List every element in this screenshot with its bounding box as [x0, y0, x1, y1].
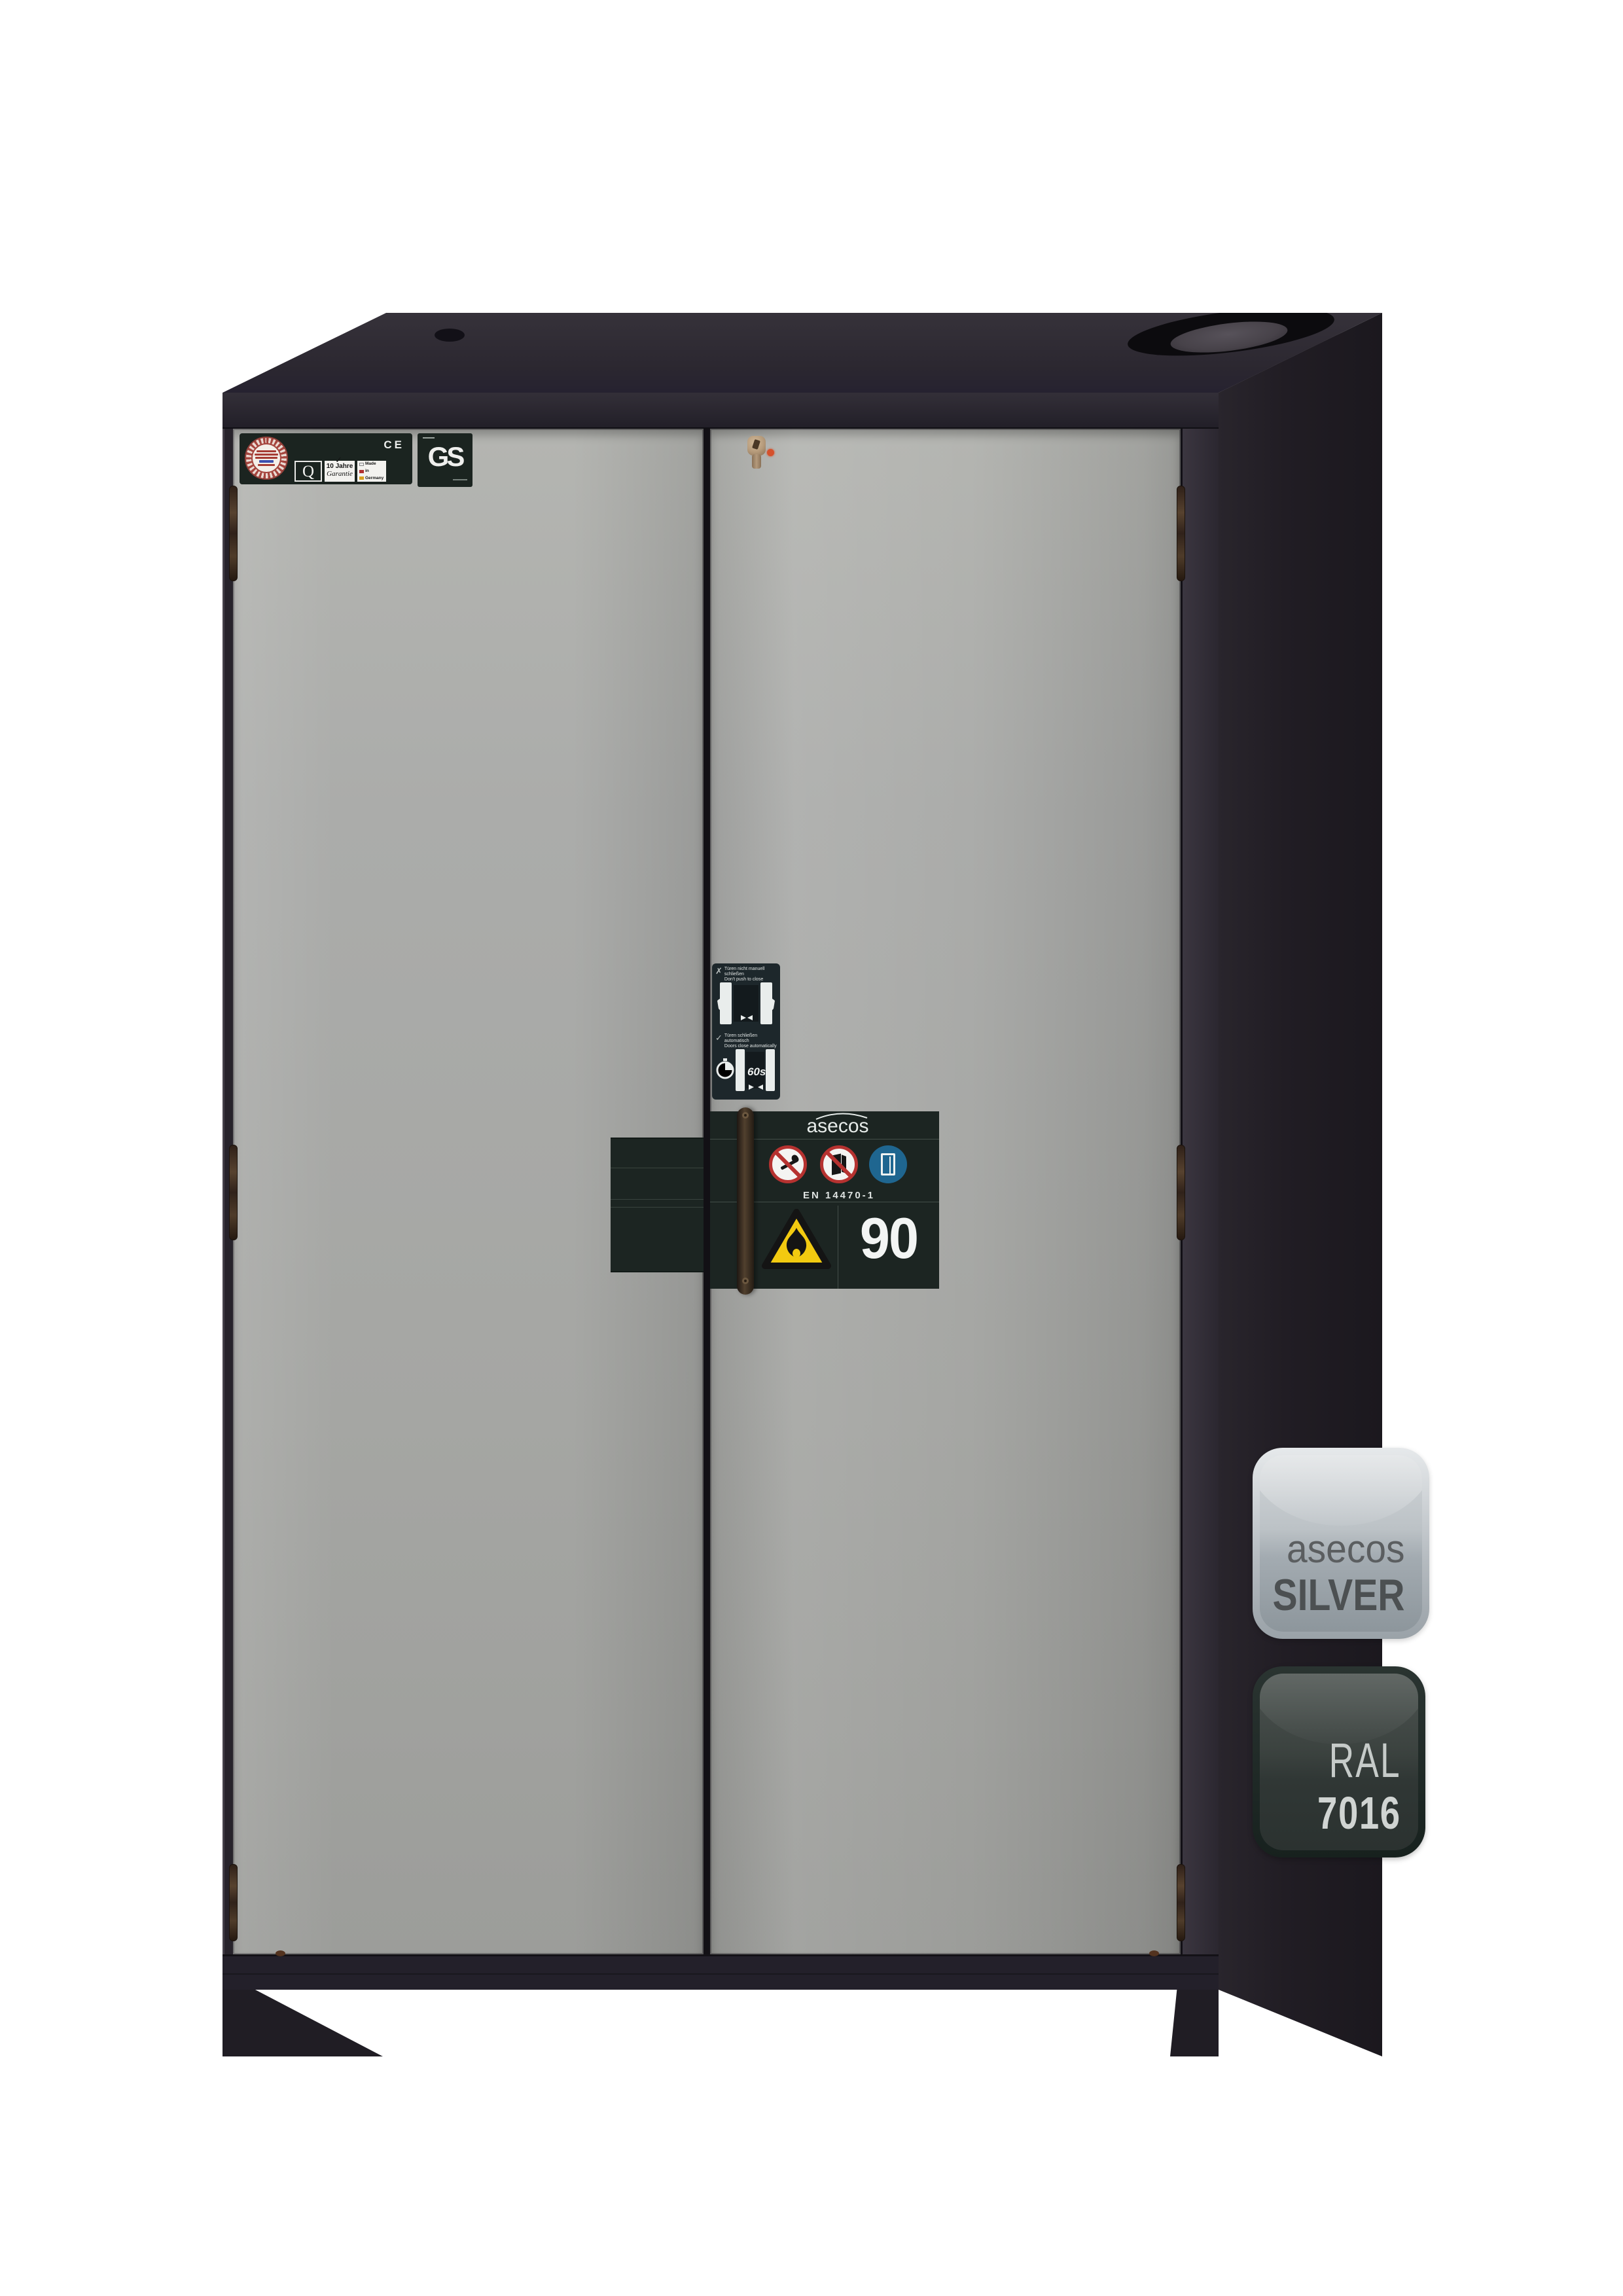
- warranty-word: Garantie: [325, 470, 355, 478]
- no-push-de: Türen nicht manuell schließen: [724, 967, 764, 977]
- dont-push-section: ✗ Türen nicht manuell schließen Don't pu…: [715, 967, 777, 1030]
- doors-close-automatically-icon: 60s: [716, 1048, 776, 1094]
- spec-line: [611, 1207, 704, 1208]
- certification-marks-row: Q ✓ 10 Jahre Garantie Made in Germany: [294, 461, 386, 482]
- ral-badge-code: 7016: [1317, 1790, 1401, 1836]
- germany-word: Germany: [365, 476, 383, 481]
- handle-screw: [742, 1112, 749, 1119]
- front-header-band: [223, 393, 1219, 429]
- left-leg: [223, 1990, 383, 2056]
- key-lock-icon: [747, 436, 766, 456]
- timer-60s: 60s: [747, 1066, 766, 1078]
- front-left-edge-highlight: [223, 393, 224, 1990]
- made-in-germany-badge: Made in Germany: [357, 461, 386, 482]
- ce-mark-icon: CE: [383, 439, 404, 452]
- label-divider-vertical: [838, 1206, 838, 1289]
- right-leg: [1170, 1990, 1219, 2056]
- hinge: [1177, 486, 1185, 581]
- checkmark-icon: ✓: [335, 455, 342, 465]
- product-photo-safety-cabinet: Q ✓ 10 Jahre Garantie Made in Germany CE…: [0, 0, 1623, 2296]
- auto-close-de: Türen schließen automatisch: [724, 1033, 757, 1043]
- flag-chip-icon: [359, 463, 364, 466]
- q-mark-letter: Q: [302, 463, 314, 480]
- handle-screw: [742, 1278, 749, 1284]
- auto-close-section: ✓ Türen schließen automatisch Doors clos…: [715, 1033, 777, 1096]
- silver-badge-level: SILVER: [1273, 1573, 1405, 1617]
- spec-line: [611, 1199, 704, 1200]
- cabinet-top-panel: [223, 313, 1382, 393]
- container-glyph: [881, 1153, 895, 1175]
- key-lock-stem: [752, 454, 761, 469]
- asecos-logo: asecos: [802, 1117, 874, 1136]
- door-gap: [704, 429, 710, 1954]
- check-icon: ✓: [715, 1033, 722, 1042]
- in-word: in: [365, 469, 369, 474]
- keep-container-closed-icon: [869, 1145, 907, 1183]
- q-mark-icon: Q: [294, 461, 322, 482]
- door-pin: [276, 1950, 285, 1956]
- ral-badge-label: RAL: [1324, 1736, 1401, 1785]
- inspection-seal-icon: [245, 437, 288, 480]
- ral-badge-face: RAL 7016: [1260, 1674, 1418, 1850]
- vent-hole-small: [435, 329, 465, 342]
- ral-7016-badge: RAL 7016: [1253, 1666, 1425, 1857]
- bottom-seam-line: [223, 1973, 1219, 1975]
- gs-letters: GS: [428, 441, 463, 472]
- spec-line: [611, 1168, 704, 1168]
- fire-rating-value: 90: [844, 1210, 933, 1267]
- gs-mark-icon: GS: [428, 446, 463, 474]
- auto-close-instruction-sticker: ✗ Türen nicht manuell schließen Don't pu…: [712, 963, 780, 1100]
- no-door-blocking-icon: [820, 1145, 858, 1183]
- flag-chip-icon: [359, 470, 364, 473]
- type-label-spec-section: [611, 1138, 704, 1272]
- front-bottom-band: [223, 1954, 1219, 1990]
- asecos-silver-badge: asecos SILVER: [1253, 1448, 1429, 1639]
- door-handle: [737, 1107, 754, 1295]
- hinge: [1177, 1864, 1185, 1941]
- hinge: [229, 1864, 238, 1941]
- seal-text-lines: [251, 443, 281, 473]
- hinge: [1177, 1145, 1185, 1240]
- badge-gloss-highlight: [1260, 1455, 1422, 1526]
- warranty-badge: ✓ 10 Jahre Garantie: [325, 461, 355, 482]
- flag-chip-icon: [359, 476, 364, 480]
- door-wedge-glyph: [832, 1154, 841, 1175]
- silver-badge-brand: asecos: [1260, 1530, 1405, 1569]
- hinge: [229, 1145, 238, 1240]
- norm-text: EN 14470-1: [749, 1190, 929, 1201]
- door-pin: [1149, 1950, 1159, 1956]
- cross-icon: ✗: [715, 967, 722, 975]
- made-word: Made: [365, 462, 376, 467]
- status-led: [767, 449, 774, 456]
- dont-push-doors-icon: [716, 981, 776, 1027]
- no-open-flames-icon: [769, 1145, 807, 1183]
- certification-label-panel: Q ✓ 10 Jahre Garantie Made in Germany CE: [240, 433, 412, 484]
- gs-small-text-line: [453, 479, 467, 480]
- flammable-warning-icon: [761, 1208, 832, 1271]
- gs-small-text-line: [423, 437, 435, 439]
- gs-certified-panel: GS: [418, 433, 473, 487]
- match-flame-glyph: [780, 1159, 796, 1170]
- front-right-frame: [1181, 429, 1219, 1954]
- silver-badge-face: asecos SILVER: [1260, 1455, 1422, 1632]
- hinge: [229, 486, 238, 581]
